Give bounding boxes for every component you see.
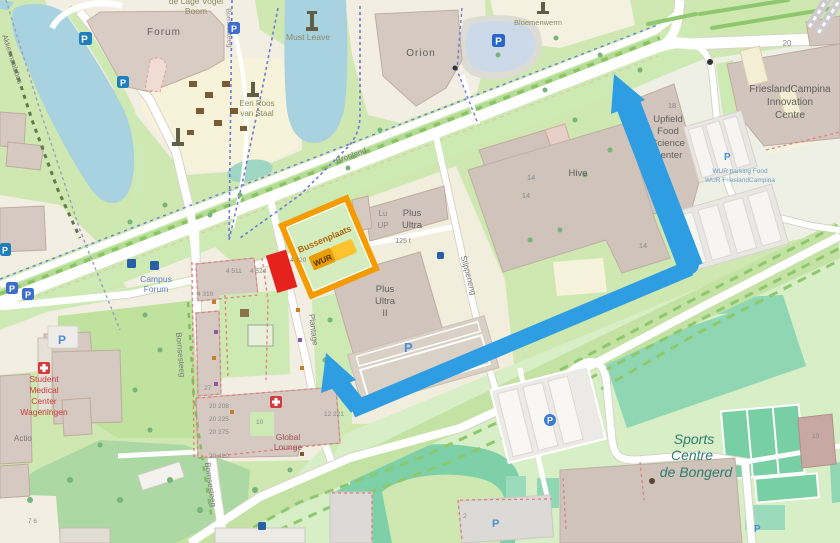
svg-text:7 6: 7 6	[28, 518, 37, 525]
svg-text:Sports: Sports	[674, 431, 714, 447]
svg-text:Center: Center	[31, 396, 57, 406]
svg-text:14: 14	[527, 173, 535, 182]
svg-text:4 511: 4 511	[226, 268, 242, 275]
svg-text:20 225: 20 225	[209, 416, 229, 423]
svg-text:Orion: Orion	[406, 48, 435, 59]
svg-text:10: 10	[256, 419, 264, 426]
svg-text:P: P	[58, 333, 66, 347]
svg-text:Innovation: Innovation	[767, 97, 813, 108]
svg-text:19: 19	[812, 433, 820, 440]
svg-text:P: P	[9, 284, 15, 294]
svg-text:P: P	[231, 24, 237, 34]
svg-text:Ultra: Ultra	[402, 220, 423, 231]
svg-text:Boom: Boom	[185, 6, 207, 16]
svg-text:Ultra: Ultra	[375, 296, 396, 307]
svg-text:Forum: Forum	[144, 284, 169, 294]
svg-text:FrieslandCampina: FrieslandCampina	[749, 84, 831, 95]
svg-text:Centre: Centre	[671, 447, 713, 463]
svg-text:UP: UP	[377, 221, 388, 230]
svg-text:Upfield: Upfield	[653, 114, 683, 125]
svg-text:P: P	[724, 152, 731, 163]
svg-text:P: P	[120, 78, 126, 88]
svg-text:II: II	[382, 308, 387, 319]
svg-text:van Staal: van Staal	[240, 109, 274, 118]
svg-text:125 t: 125 t	[395, 238, 411, 245]
svg-text:WUR parking Food: WUR parking Food	[712, 168, 768, 175]
svg-text:27: 27	[204, 385, 212, 392]
svg-text:Plus: Plus	[376, 284, 395, 295]
svg-text:4 310: 4 310	[197, 291, 214, 298]
svg-text:Een Roos: Een Roos	[239, 99, 274, 108]
svg-text:Actio: Actio	[14, 434, 32, 443]
svg-text:20: 20	[783, 39, 792, 48]
svg-text:4 524: 4 524	[250, 268, 267, 275]
svg-text:Global: Global	[276, 432, 301, 442]
svg-text:20 208: 20 208	[209, 403, 229, 410]
svg-text:20 375: 20 375	[209, 429, 229, 436]
svg-text:14: 14	[522, 191, 530, 200]
svg-text:P: P	[547, 416, 553, 426]
svg-text:Bloemenwerm: Bloemenwerm	[514, 18, 562, 27]
svg-text:Wageningen: Wageningen	[20, 407, 68, 417]
svg-text:de Bongerd: de Bongerd	[660, 464, 734, 480]
svg-text:P: P	[2, 246, 8, 256]
svg-text:Food: Food	[657, 126, 679, 137]
svg-text:18: 18	[668, 101, 676, 110]
svg-text:WUR FrieslandCampina: WUR FrieslandCampina	[705, 177, 775, 184]
svg-text:Centre: Centre	[775, 110, 805, 121]
svg-text:2: 2	[463, 513, 467, 520]
svg-text:14: 14	[639, 241, 647, 250]
svg-text:P: P	[81, 35, 88, 46]
svg-text:Medical: Medical	[29, 385, 58, 395]
svg-text:Lounge: Lounge	[274, 442, 303, 452]
svg-text:P: P	[754, 524, 761, 535]
svg-text:P: P	[495, 37, 502, 48]
svg-text:Plus: Plus	[403, 208, 422, 219]
svg-text:Campus: Campus	[140, 274, 172, 284]
svg-text:Hive: Hive	[568, 168, 587, 179]
svg-text:P: P	[492, 518, 499, 530]
svg-text:Forum: Forum	[147, 27, 181, 38]
svg-text:Lu: Lu	[379, 209, 388, 218]
svg-text:4 120: 4 120	[290, 257, 307, 264]
svg-text:12 221: 12 221	[324, 411, 344, 418]
svg-text:Must Leave: Must Leave	[286, 32, 330, 42]
svg-text:P: P	[404, 340, 413, 355]
svg-text:P: P	[25, 290, 31, 300]
svg-text:Student: Student	[29, 374, 59, 384]
svg-text:20 420: 20 420	[209, 453, 229, 460]
